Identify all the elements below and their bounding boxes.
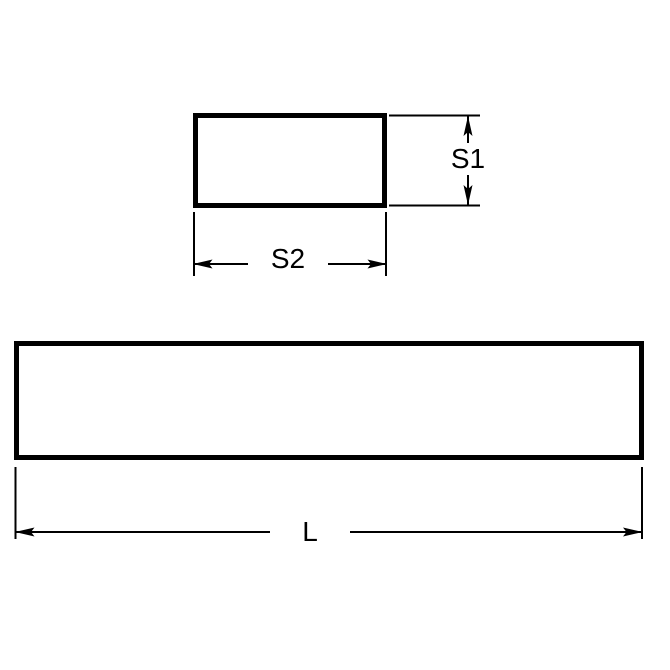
cross-section-rectangle (196, 116, 385, 206)
s1-dimension-label: S1 (428, 143, 508, 175)
s2-dimension-label: S2 (248, 243, 328, 275)
side-view-rectangle (17, 344, 642, 458)
l-dimension-label: L (270, 516, 350, 548)
technical-drawing-canvas: S1 S2 L (0, 0, 670, 670)
dimension-drawing (0, 0, 670, 670)
